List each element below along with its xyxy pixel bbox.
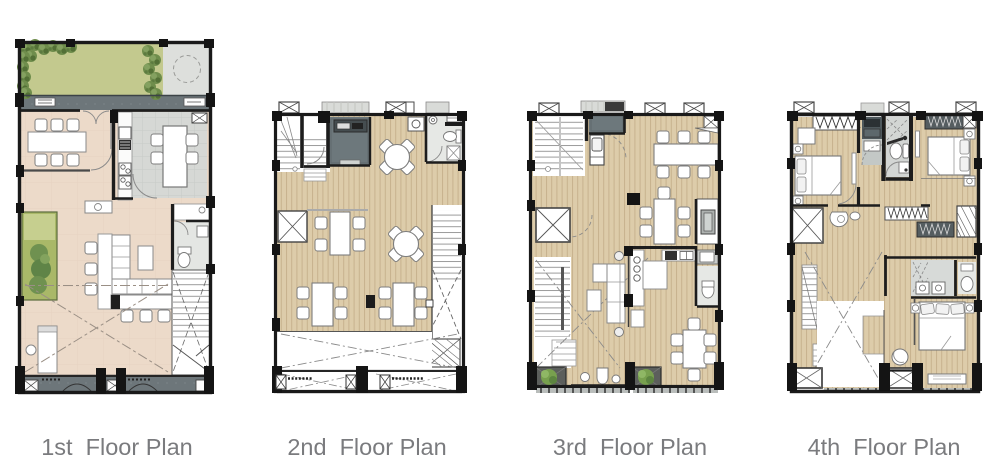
svg-text:2nd Floor Plan: 2nd Floor Plan bbox=[287, 434, 446, 460]
svg-text:3rd Floor Plan: 3rd Floor Plan bbox=[553, 434, 707, 460]
svg-text:4th Floor Plan: 4th Floor Plan bbox=[808, 434, 961, 460]
svg-text:1st Floor Plan: 1st Floor Plan bbox=[41, 434, 193, 460]
